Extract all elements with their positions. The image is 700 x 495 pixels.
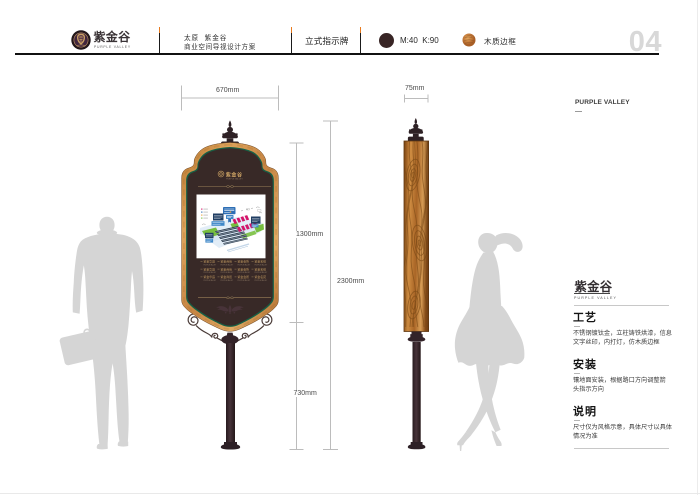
svg-text:紫金名苑: 紫金名苑 bbox=[255, 259, 267, 264]
svg-text:PURPLE VALLEY: PURPLE VALLEY bbox=[226, 178, 243, 181]
svg-text:紫金商街: 紫金商街 bbox=[221, 259, 233, 264]
svg-text:紫金商街: 紫金商街 bbox=[221, 266, 233, 271]
svg-text:紫金名苑: 紫金名苑 bbox=[255, 266, 267, 271]
svg-text:紫金华庭: 紫金华庭 bbox=[204, 274, 216, 279]
svg-text:紫金华庭: 紫金华庭 bbox=[204, 259, 216, 264]
svg-text:紫金商街: 紫金商街 bbox=[221, 274, 233, 279]
svg-text:紫金会所: 紫金会所 bbox=[238, 274, 250, 279]
svg-text:紫金名苑: 紫金名苑 bbox=[255, 274, 267, 279]
svg-text:紫金会所: 紫金会所 bbox=[238, 266, 250, 271]
svg-text:紫金谷: 紫金谷 bbox=[226, 172, 243, 179]
svg-text:紫金华庭: 紫金华庭 bbox=[204, 266, 216, 271]
svg-text:紫金会所: 紫金会所 bbox=[238, 259, 250, 264]
